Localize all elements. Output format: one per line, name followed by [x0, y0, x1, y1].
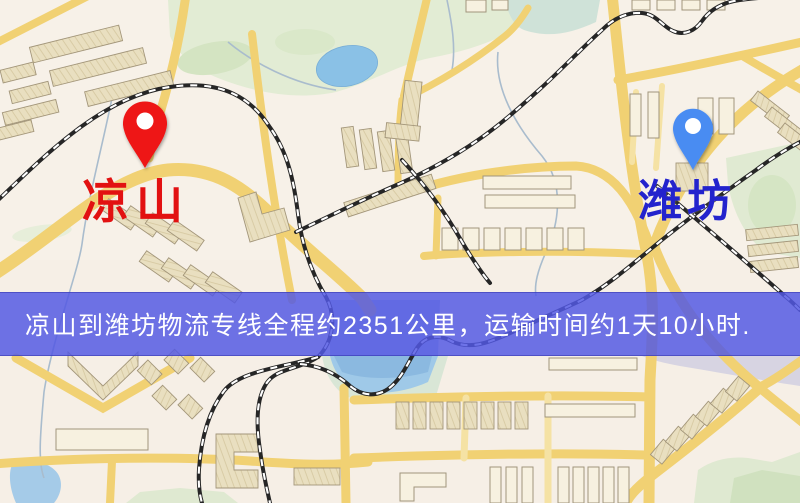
- route-info-banner: 凉山到潍坊物流专线全程约2351公里，运输时间约1天10小时.: [0, 292, 800, 356]
- destination-city-label: 潍坊: [638, 180, 736, 224]
- logistics-route-map: 凉山 潍坊 凉山到潍坊物流专线全程约2351公里，运输时间约1天10小时.: [0, 0, 800, 503]
- origin-city-label: 凉山: [82, 178, 190, 225]
- route-info-text: 凉山到潍坊物流专线全程约2351公里，运输时间约1天10小时.: [0, 306, 751, 342]
- map-canvas: [0, 0, 800, 503]
